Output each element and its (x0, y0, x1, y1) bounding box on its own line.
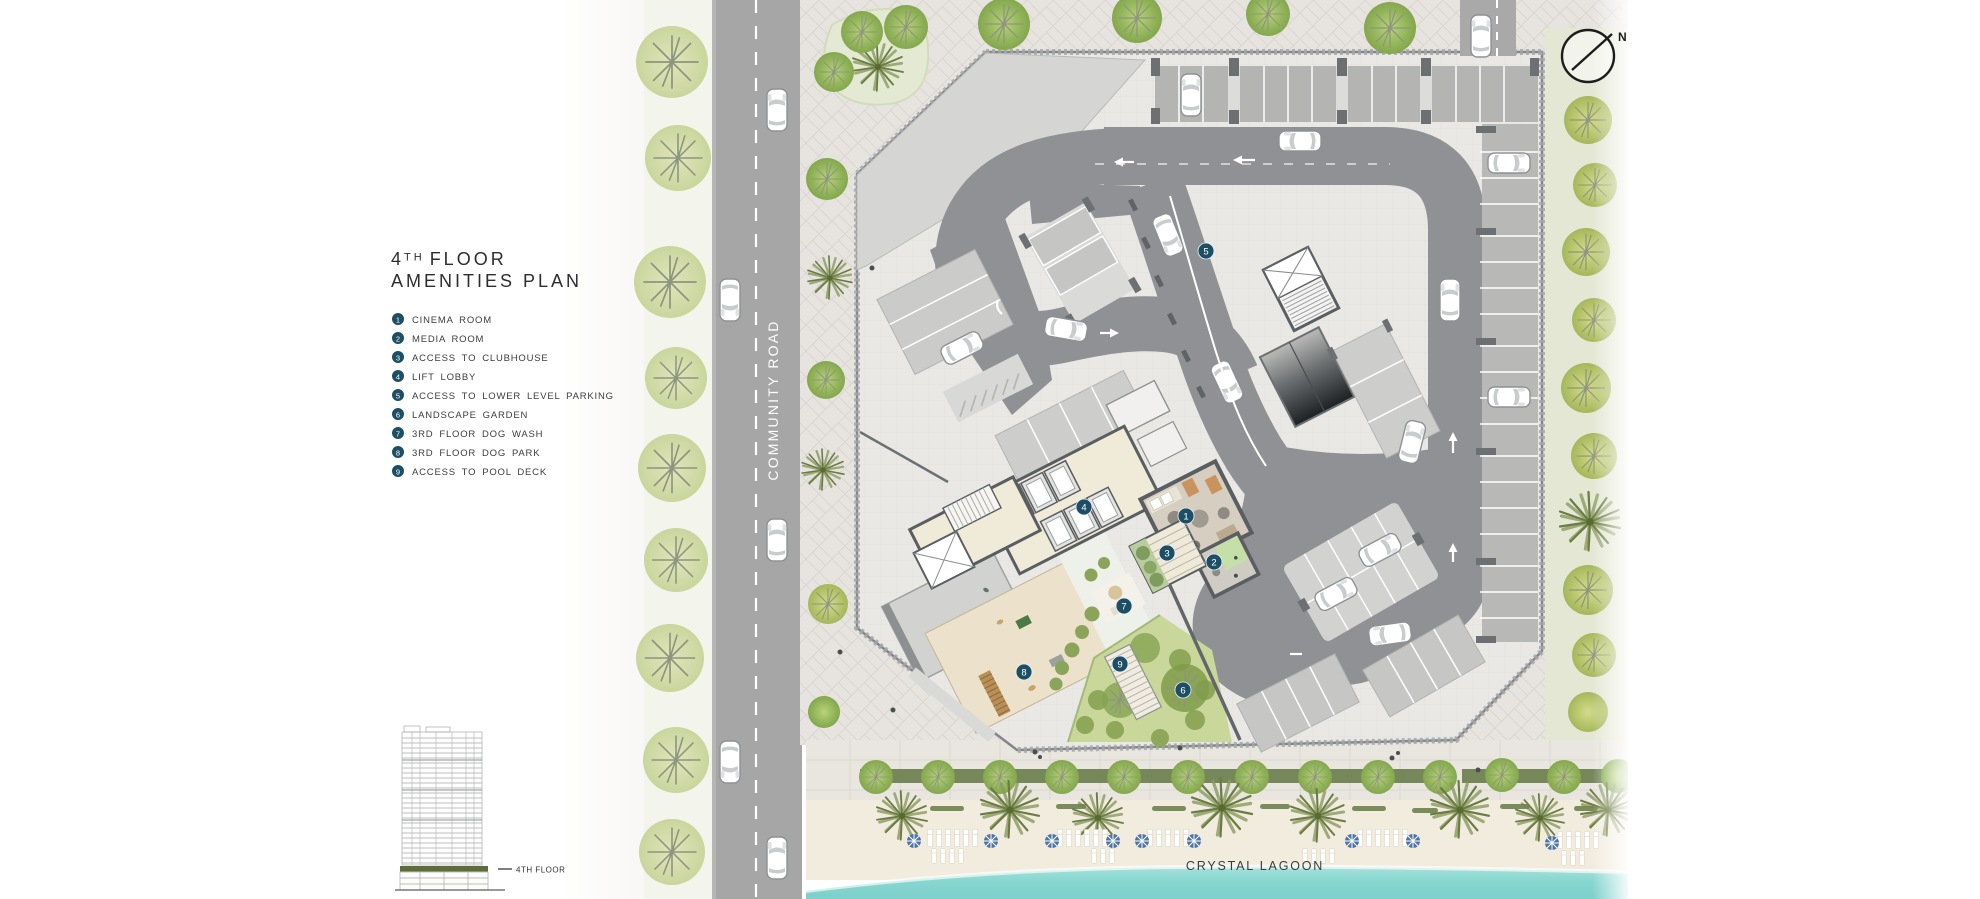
svg-text:3RD FLOOR DOG WASH: 3RD FLOOR DOG WASH (412, 429, 543, 440)
svg-text:3RD FLOOR DOG PARK: 3RD FLOOR DOG PARK (412, 448, 540, 459)
svg-text:2: 2 (396, 335, 400, 344)
svg-text:9: 9 (1117, 660, 1122, 671)
svg-text:7: 7 (1121, 602, 1126, 613)
svg-text:CRYSTAL LAGOON: CRYSTAL LAGOON (1186, 859, 1324, 873)
svg-text:6: 6 (396, 411, 400, 420)
svg-text:3: 3 (396, 354, 400, 363)
svg-text:MEDIA ROOM: MEDIA ROOM (412, 334, 484, 345)
svg-text:7: 7 (396, 430, 400, 439)
svg-text:ACCESS TO LOWER LEVEL PARKING: ACCESS TO LOWER LEVEL PARKING (412, 391, 614, 402)
svg-text:COMMUNITY ROAD: COMMUNITY ROAD (765, 319, 781, 480)
svg-text:8: 8 (396, 449, 400, 458)
svg-text:4: 4 (1081, 503, 1086, 514)
svg-text:ACCESS TO CLUBHOUSE: ACCESS TO CLUBHOUSE (412, 353, 549, 364)
svg-text:4TH FLOOR: 4TH FLOOR (516, 866, 565, 875)
svg-text:4: 4 (396, 373, 400, 382)
svg-text:5: 5 (396, 392, 400, 401)
svg-text:6: 6 (1180, 686, 1185, 697)
svg-text:2: 2 (1211, 558, 1216, 569)
svg-text:1: 1 (396, 316, 400, 325)
svg-text:LANDSCAPE GARDEN: LANDSCAPE GARDEN (412, 410, 528, 421)
svg-text:LIFT LOBBY: LIFT LOBBY (412, 372, 476, 383)
svg-text:3: 3 (1164, 549, 1169, 560)
svg-text:8: 8 (1021, 668, 1026, 679)
svg-text:5: 5 (1203, 247, 1208, 258)
svg-text:N: N (1618, 30, 1627, 44)
svg-text:9: 9 (396, 468, 400, 477)
svg-text:AMENITIES PLAN: AMENITIES PLAN (391, 271, 582, 291)
svg-text:1: 1 (1183, 512, 1188, 523)
svg-text:CINEMA ROOM: CINEMA ROOM (412, 315, 492, 326)
svg-text:ACCESS TO POOL DECK: ACCESS TO POOL DECK (412, 467, 547, 478)
